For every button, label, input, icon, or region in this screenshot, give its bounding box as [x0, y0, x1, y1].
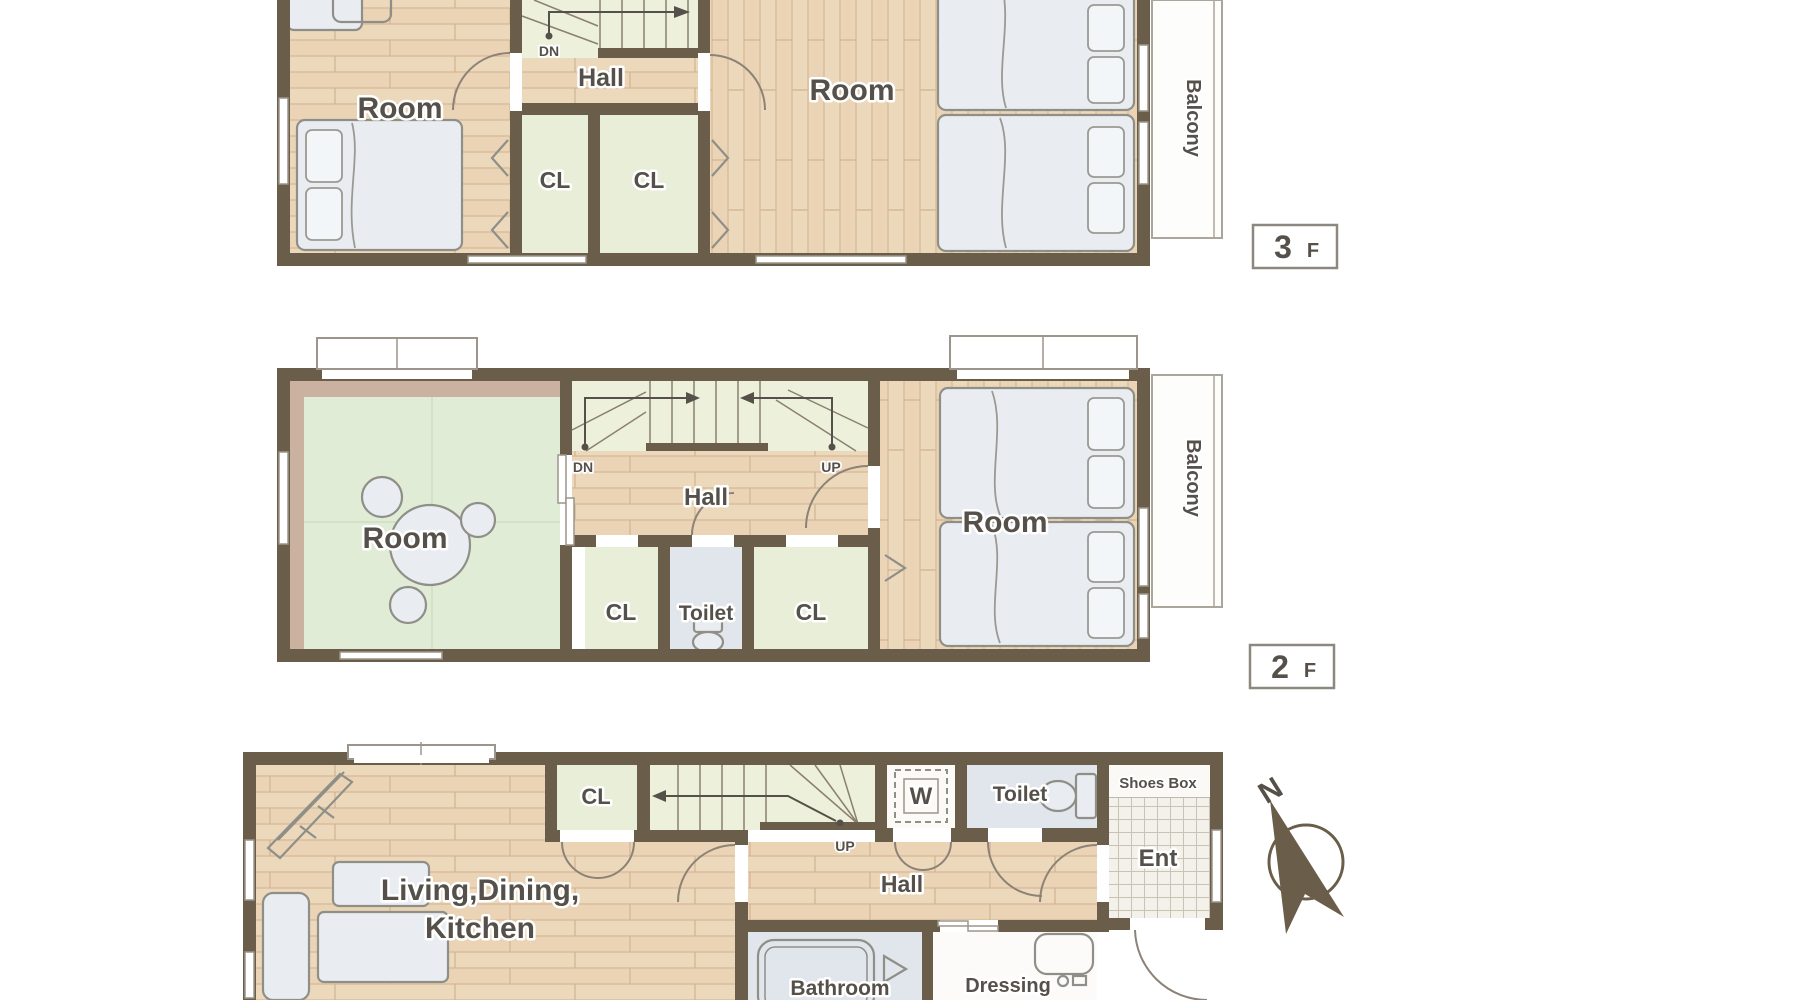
f2-stool-2: [461, 503, 495, 537]
f2-balcony-label: Balcony: [1182, 439, 1204, 518]
f2-stair-dn-label: DN: [573, 459, 593, 475]
f2-right-room-label: Room: [963, 506, 1048, 539]
floor-plan-page: Room Hall DN CL CL Room Balcony 3 F: [0, 0, 1800, 1000]
f2-bay-window-right: [950, 336, 1137, 379]
f3-stair-dn-label: DN: [539, 43, 559, 59]
f3-closet2-label: CL: [634, 167, 665, 193]
f1-shoes-box-label: Shoes Box: [1119, 775, 1197, 792]
f1-entrance-label: Ent: [1139, 845, 1178, 872]
f2-stool-1: [362, 477, 402, 517]
f3-right-room-label: Room: [810, 74, 895, 107]
f2-bed-right-bottom: [940, 522, 1134, 646]
f1-staircase: [650, 765, 875, 830]
f2-stool-3: [390, 587, 426, 623]
f1-closet-label: CL: [581, 784, 610, 809]
f2-tatami-room: [290, 381, 560, 649]
f2-closet1-floor: [585, 547, 658, 649]
f1-front-door: [1130, 918, 1207, 1000]
floor-3-plan: Room Hall DN CL CL Room Balcony 3 F: [277, 0, 1337, 268]
f3-bed-right-bottom: [938, 115, 1134, 251]
f1-bathroom-label: Bathroom: [790, 977, 889, 1000]
f3-bed-right-top: [938, 0, 1134, 110]
f1-dressing-door: [938, 920, 998, 932]
f1-window-left-1: [245, 840, 254, 900]
f2-closet2-label: CL: [796, 599, 827, 625]
f3-badge-suffix: F: [1307, 240, 1319, 262]
f2-window-right-1: [1139, 508, 1148, 586]
f2-badge-number: 2: [1271, 649, 1289, 685]
f1-washer-label: W: [910, 783, 933, 810]
f1-window-right: [1212, 830, 1221, 902]
f3-bed-left: [297, 120, 462, 250]
floor-1-plan: Living,Dining, Kitchen CL UP W Toilet Sh…: [243, 742, 1223, 1000]
f3-balcony-label: Balcony: [1182, 79, 1204, 158]
f2-closet1-door-gap: [596, 535, 638, 547]
f3-window-bottom-2: [756, 256, 906, 263]
f2-bay-window-left: [317, 338, 477, 379]
f1-sofa: [263, 893, 309, 1000]
compass-needle-icon: [1270, 800, 1344, 934]
f3-window-left: [279, 98, 288, 184]
f2-toilet-label: Toilet: [679, 602, 733, 625]
f2-staircase: [572, 381, 868, 451]
f2-toilet-door-gap: [692, 535, 734, 547]
f1-ldk-label-line2: Kitchen: [425, 912, 535, 945]
f2-closet1-label: CL: [606, 599, 637, 625]
f2-left-room-label: Room: [363, 522, 448, 555]
f2-badge-suffix: F: [1304, 660, 1316, 682]
f1-ldk-floor-upper: [256, 765, 545, 842]
f3-window-right-2: [1139, 122, 1148, 184]
floor-2-plan: Room Hall DN UP CL Toilet CL Room Balcon…: [277, 336, 1334, 688]
f2-closet2-door-gap: [786, 535, 838, 547]
f2-right-room-door-gap: [868, 466, 880, 528]
f1-ldk-label-line1: Living,Dining,: [381, 874, 579, 907]
f2-window-bottom: [340, 652, 442, 659]
f2-window-left: [279, 452, 288, 544]
f1-stair-up-label: UP: [835, 838, 854, 854]
f2-floor-badge: 2 F: [1250, 645, 1334, 688]
f2-sliding-door-tatami: [558, 455, 574, 545]
f3-floor-badge: 3 F: [1253, 225, 1337, 268]
floor-plan-canvas: Room Hall DN CL CL Room Balcony 3 F: [0, 0, 1800, 1000]
f3-closet1-label: CL: [540, 167, 571, 193]
f3-badge-number: 3: [1274, 229, 1292, 265]
f1-hall-label: Hall: [881, 871, 923, 897]
f1-bay-window-top: [348, 742, 495, 765]
f3-left-room-door-gap: [510, 53, 522, 111]
f3-window-bottom-1: [468, 256, 586, 263]
f2-window-right-2: [1139, 594, 1148, 638]
f3-hall-label: Hall: [578, 64, 624, 92]
f1-toilet-label: Toilet: [993, 783, 1047, 806]
compass-north-indicator: N: [1253, 771, 1344, 934]
f2-stair-up-label: UP: [821, 459, 840, 475]
f3-left-room-label: Room: [358, 92, 443, 125]
f1-window-left-2: [245, 952, 254, 998]
f3-window-right-1: [1139, 45, 1148, 111]
f1-dressing-label-line1: Dressing: [965, 975, 1051, 997]
f2-hall-label: Hall: [684, 484, 728, 511]
f3-right-room-door-gap: [698, 53, 710, 111]
f2-closet2-floor: [754, 547, 868, 649]
f2-bed-right-top: [940, 388, 1134, 518]
